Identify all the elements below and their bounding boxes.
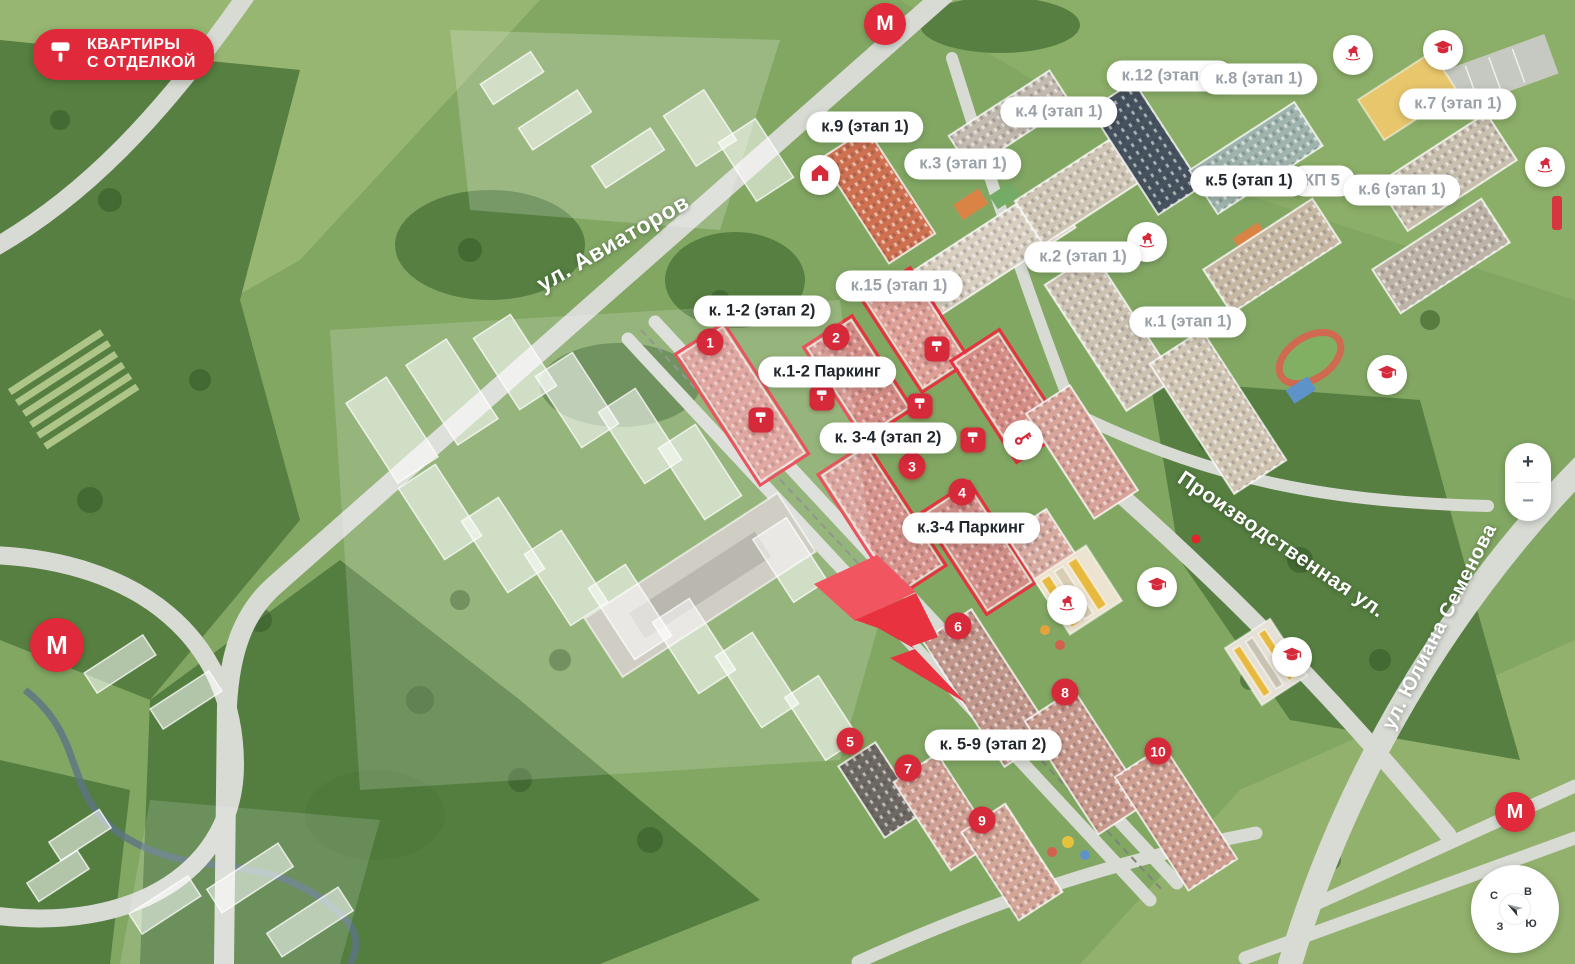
key-icon — [1012, 427, 1034, 454]
finished-apartments-badge: КВАРТИРЫ С ОТДЕЛКОЙ — [33, 29, 214, 80]
sales-office-pin[interactable] — [800, 155, 840, 195]
label-k2-stage1[interactable]: к.2 (этап 1) — [1024, 242, 1141, 273]
compass-east: В — [1524, 886, 1532, 898]
rocking-horse-icon — [1342, 42, 1364, 69]
red-dot-marker — [1192, 535, 1201, 544]
label-k1-2-parking[interactable]: к.1-2 Паркинг — [758, 357, 896, 388]
paint-roller-badge — [810, 386, 835, 411]
label-k4-stage1[interactable]: к.4 (этап 1) — [1000, 97, 1117, 128]
label-k1-stage1[interactable]: к.1 (этап 1) — [1129, 307, 1246, 338]
label-k3-stage1[interactable]: к.3 (этап 1) — [904, 149, 1021, 180]
label-k5-stage1[interactable]: к.5 (этап 1) — [1190, 166, 1307, 197]
paint-roller-icon — [814, 388, 830, 409]
graduation-cap-icon — [1376, 362, 1398, 389]
graduation-cap-icon — [1146, 574, 1168, 601]
house-icon — [809, 162, 831, 189]
badge-line-1: КВАРТИРЫ — [87, 36, 196, 54]
school-pin-3[interactable] — [1137, 567, 1177, 607]
label-k1-2-stage2[interactable]: к. 1-2 (этап 2) — [694, 296, 831, 327]
metro-icon[interactable]: М — [1495, 792, 1535, 832]
building-marker-4[interactable]: 4 — [949, 479, 976, 506]
graduation-cap-icon — [1281, 644, 1303, 671]
label-k9-stage1[interactable]: к.9 (этап 1) — [806, 112, 923, 143]
paint-roller-badge — [925, 337, 950, 362]
compass-north: С — [1490, 890, 1498, 902]
compass[interactable]: С В З Ю — [1471, 865, 1559, 953]
building-marker-1[interactable]: 1 — [697, 329, 724, 356]
paint-roller-icon — [965, 430, 981, 451]
metro-icon[interactable]: М — [864, 3, 906, 45]
paint-roller-icon — [47, 37, 77, 72]
label-k3-4-parking[interactable]: к.3-4 Паркинг — [902, 513, 1040, 544]
building-marker-8[interactable]: 8 — [1052, 679, 1079, 706]
zoom-in-button[interactable]: + — [1505, 443, 1551, 482]
paint-roller-badge — [908, 394, 933, 419]
compass-west: З — [1497, 921, 1504, 933]
paint-roller-icon — [929, 339, 945, 360]
building-marker-6[interactable]: 6 — [945, 613, 972, 640]
label-k8-stage1[interactable]: к.8 (этап 1) — [1200, 64, 1317, 95]
building-marker-10[interactable]: 10 — [1145, 738, 1172, 765]
paint-roller-icon — [753, 410, 769, 431]
masterplan-map[interactable]: ул. Авиаторов Производственная ул. ул. Ю… — [0, 0, 1575, 964]
paint-roller-icon — [912, 396, 928, 417]
paint-roller-badge — [749, 408, 774, 433]
paint-roller-badge — [961, 428, 986, 453]
label-k6-stage1[interactable]: к.6 (этап 1) — [1343, 175, 1460, 206]
building-marker-9[interactable]: 9 — [969, 807, 996, 834]
metro-icon[interactable]: М — [30, 618, 84, 672]
graduation-cap-icon — [1432, 37, 1454, 64]
zoom-control[interactable]: + − — [1505, 443, 1551, 521]
compass-south: Ю — [1525, 918, 1536, 930]
building-marker-5[interactable]: 5 — [837, 728, 864, 755]
building-marker-7[interactable]: 7 — [895, 755, 922, 782]
label-k5-9-stage2[interactable]: к. 5-9 (этап 2) — [925, 730, 1062, 761]
badge-line-2: С ОТДЕЛКОЙ — [87, 54, 196, 72]
rocking-horse-icon — [1534, 154, 1556, 181]
school-pin-2[interactable] — [1367, 355, 1407, 395]
kindergarten-pin-2[interactable] — [1525, 147, 1565, 187]
keys-handover-pin[interactable] — [1003, 420, 1043, 460]
rocking-horse-icon — [1056, 592, 1078, 619]
school-pin-1[interactable] — [1423, 30, 1463, 70]
building-marker-2[interactable]: 2 — [823, 324, 850, 351]
label-k7-stage1[interactable]: к.7 (этап 1) — [1399, 89, 1516, 120]
kindergarten-pin-4[interactable] — [1047, 585, 1087, 625]
kindergarten-pin-1[interactable] — [1333, 35, 1373, 75]
building-marker-3[interactable]: 3 — [899, 453, 926, 480]
label-k3-4-stage2[interactable]: к. 3-4 (этап 2) — [820, 423, 957, 454]
map-image — [0, 0, 1575, 964]
label-k15-stage1[interactable]: к.15 (этап 1) — [836, 271, 963, 302]
school-pin-4[interactable] — [1272, 637, 1312, 677]
zoom-out-button[interactable]: − — [1505, 483, 1551, 522]
